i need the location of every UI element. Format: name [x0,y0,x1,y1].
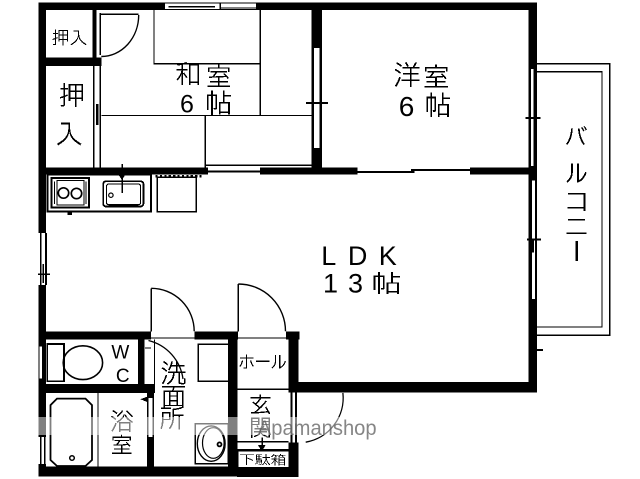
svg-text:6: 6 [180,91,194,119]
svg-text:13: 13 [323,269,373,299]
svg-text:W: W [111,343,129,364]
svg-text:Apamanshop: Apamanshop [258,416,377,440]
svg-text:LDK: LDK [321,241,408,271]
svg-text:C: C [116,366,130,387]
svg-text:6: 6 [399,91,415,122]
